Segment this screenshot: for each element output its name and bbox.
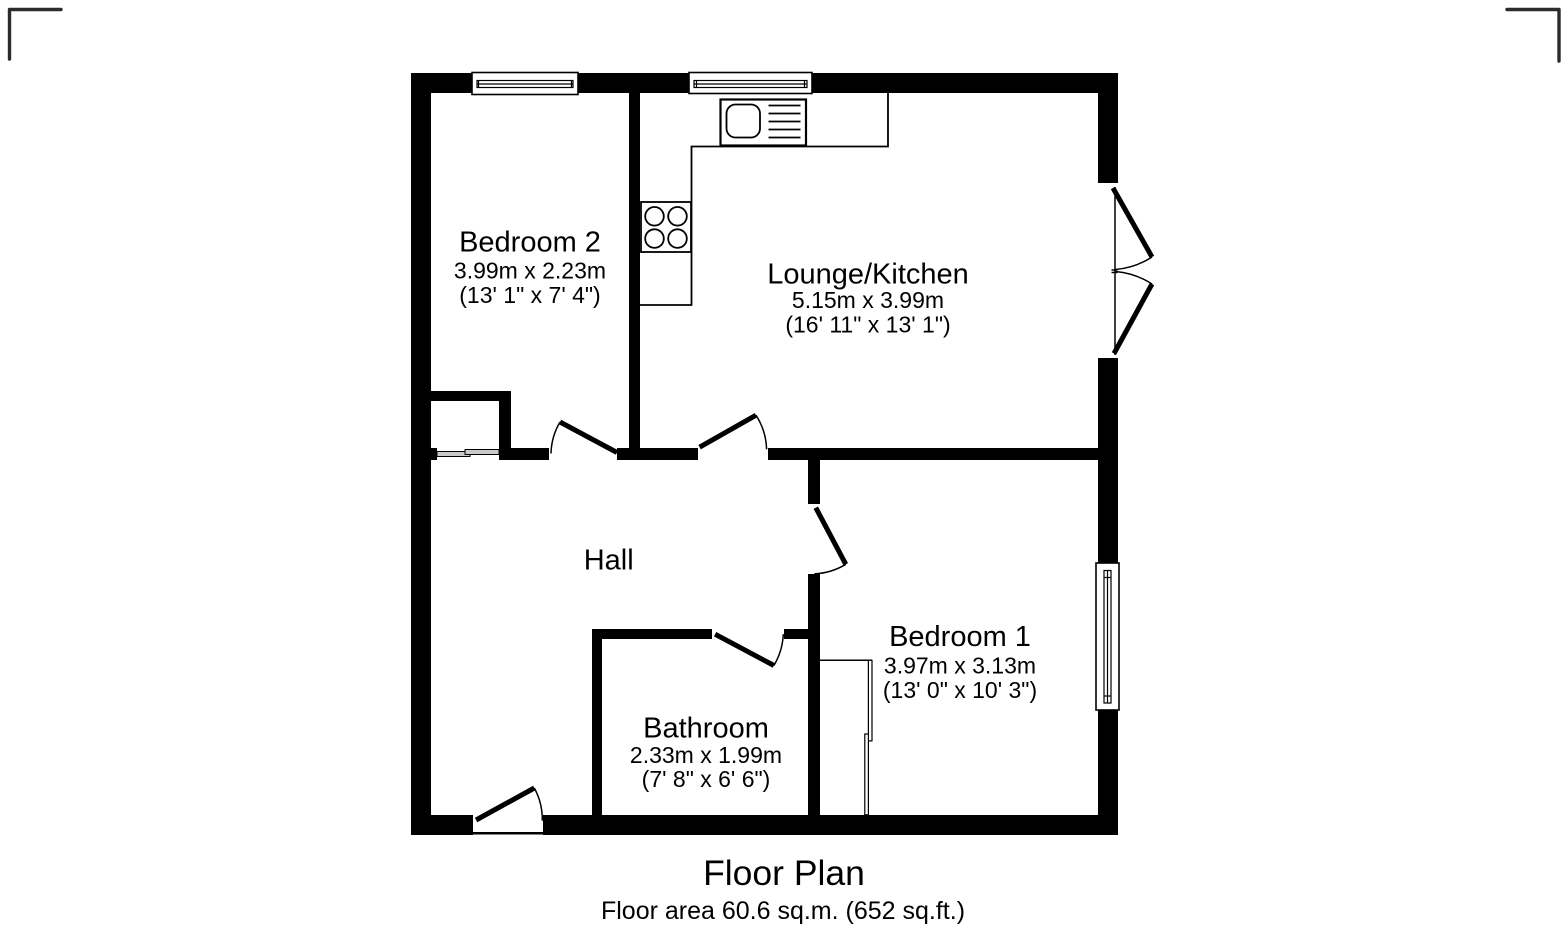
svg-text:(13' 1" x 7' 4"): (13' 1" x 7' 4") (459, 282, 600, 308)
svg-text:Bedroom 2: Bedroom 2 (459, 227, 601, 259)
svg-text:Bathroom: Bathroom (643, 713, 769, 745)
svg-text:3.97m x 3.13m: 3.97m x 3.13m (884, 653, 1036, 679)
svg-text:5.15m x 3.99m: 5.15m x 3.99m (792, 287, 944, 313)
svg-text:Bedroom 1: Bedroom 1 (889, 621, 1031, 653)
svg-text:2.33m x 1.99m: 2.33m x 1.99m (630, 742, 782, 768)
svg-text:3.99m x 2.23m: 3.99m x 2.23m (454, 258, 606, 284)
svg-text:(7' 8" x 6' 6"): (7' 8" x 6' 6") (642, 766, 771, 792)
svg-text:Lounge/Kitchen: Lounge/Kitchen (767, 259, 969, 291)
svg-text:(16' 11" x 13' 1"): (16' 11" x 13' 1") (785, 312, 950, 338)
svg-text:Floor area 60.6 sq.m. (652 sq.: Floor area 60.6 sq.m. (652 sq.ft.) (601, 897, 965, 925)
svg-text:Hall: Hall (584, 545, 634, 577)
svg-text:Floor Plan: Floor Plan (703, 853, 865, 893)
svg-text:(13' 0" x 10' 3"): (13' 0" x 10' 3") (883, 677, 1037, 703)
